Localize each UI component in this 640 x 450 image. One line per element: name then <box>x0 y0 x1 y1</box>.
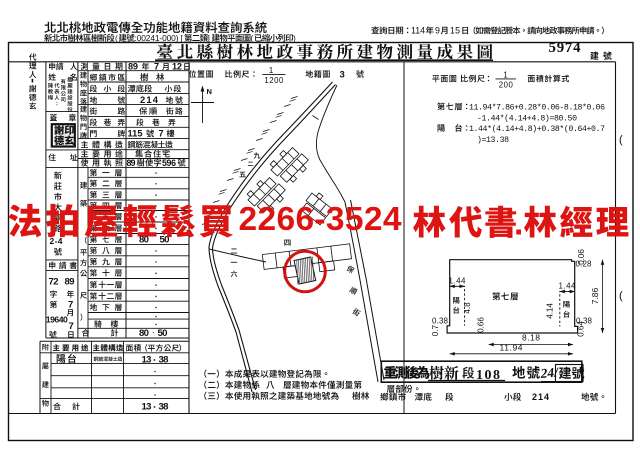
svg-text:12: 12 <box>172 62 182 72</box>
svg-text:(: ( <box>619 290 623 302</box>
svg-text:3: 3 <box>340 70 345 81</box>
svg-text:0.06: 0.06 <box>577 249 586 265</box>
svg-text:214: 214 <box>532 392 549 402</box>
svg-text:4.14: 4.14 <box>546 303 555 319</box>
svg-text:7.86: 7.86 <box>590 287 600 304</box>
svg-text:115: 115 <box>128 129 143 139</box>
svg-text:38: 38 <box>159 402 170 413</box>
svg-text:)=13.38: )=13.38 <box>477 135 509 145</box>
svg-text:13: 13 <box>142 354 152 365</box>
svg-text:50: 50 <box>158 328 168 339</box>
svg-text:1.44*(4.14+4.8)+0.38*(0.64+0.7: 1.44*(4.14+4.8)+0.38*(0.64+0.7 <box>469 124 605 134</box>
svg-text:5974: 5974 <box>549 40 582 56</box>
svg-text:24/: 24/ <box>539 364 560 381</box>
svg-text:-1.44*(4.14+4.8)=80.50: -1.44*(4.14+4.8)=80.50 <box>477 113 577 123</box>
svg-text:114: 114 <box>411 26 425 36</box>
svg-text:8.18: 8.18 <box>522 333 540 343</box>
svg-text:0.64: 0.64 <box>577 321 586 337</box>
svg-text:89: 89 <box>128 62 138 72</box>
svg-text:0.38: 0.38 <box>432 317 449 326</box>
svg-text:80: 80 <box>139 328 149 339</box>
svg-text:): ) <box>293 33 296 43</box>
svg-text:N: N <box>207 87 212 96</box>
svg-text:2-4: 2-4 <box>50 236 63 246</box>
svg-text:1200: 1200 <box>264 76 284 85</box>
svg-text:1: 1 <box>269 66 273 75</box>
svg-text:·: · <box>152 327 155 337</box>
svg-text:1.44: 1.44 <box>449 277 467 286</box>
svg-text:0.7: 0.7 <box>431 324 440 336</box>
svg-text:214: 214 <box>140 94 159 105</box>
svg-text:13: 13 <box>142 402 152 413</box>
svg-text:]: ] <box>208 33 210 43</box>
svg-text:72: 72 <box>49 277 59 288</box>
svg-text:2266-3524: 2266-3524 <box>239 201 402 238</box>
svg-text:89: 89 <box>127 158 136 168</box>
svg-text:38: 38 <box>159 354 170 365</box>
svg-text:7: 7 <box>68 300 73 311</box>
svg-text:(: ( <box>115 33 118 43</box>
svg-text:89: 89 <box>65 277 75 288</box>
svg-text:(: ( <box>251 33 254 43</box>
svg-text:19640: 19640 <box>46 315 68 325</box>
svg-text:7: 7 <box>69 321 74 332</box>
svg-text:.: . <box>514 206 523 243</box>
svg-text:7: 7 <box>154 62 159 72</box>
svg-text:9: 9 <box>435 26 440 36</box>
svg-text:0.66: 0.66 <box>477 317 486 333</box>
svg-text:4.8: 4.8 <box>463 302 472 314</box>
svg-text:15: 15 <box>450 26 460 36</box>
svg-text:596: 596 <box>162 158 176 168</box>
svg-text:[: [ <box>181 33 184 43</box>
svg-text:(: ( <box>619 134 623 146</box>
svg-text:200: 200 <box>499 81 514 90</box>
svg-text:11.94*7.86+0.28*0.06-8.18*0.06: 11.94*7.86+0.28*0.06-8.18*0.06 <box>469 103 605 113</box>
svg-text::00241-000): :00241-000) <box>135 33 179 43</box>
svg-text:1: 1 <box>503 70 507 79</box>
svg-text:1.44: 1.44 <box>559 282 577 291</box>
svg-text:11.94: 11.94 <box>500 343 523 353</box>
svg-text:7: 7 <box>159 129 164 139</box>
